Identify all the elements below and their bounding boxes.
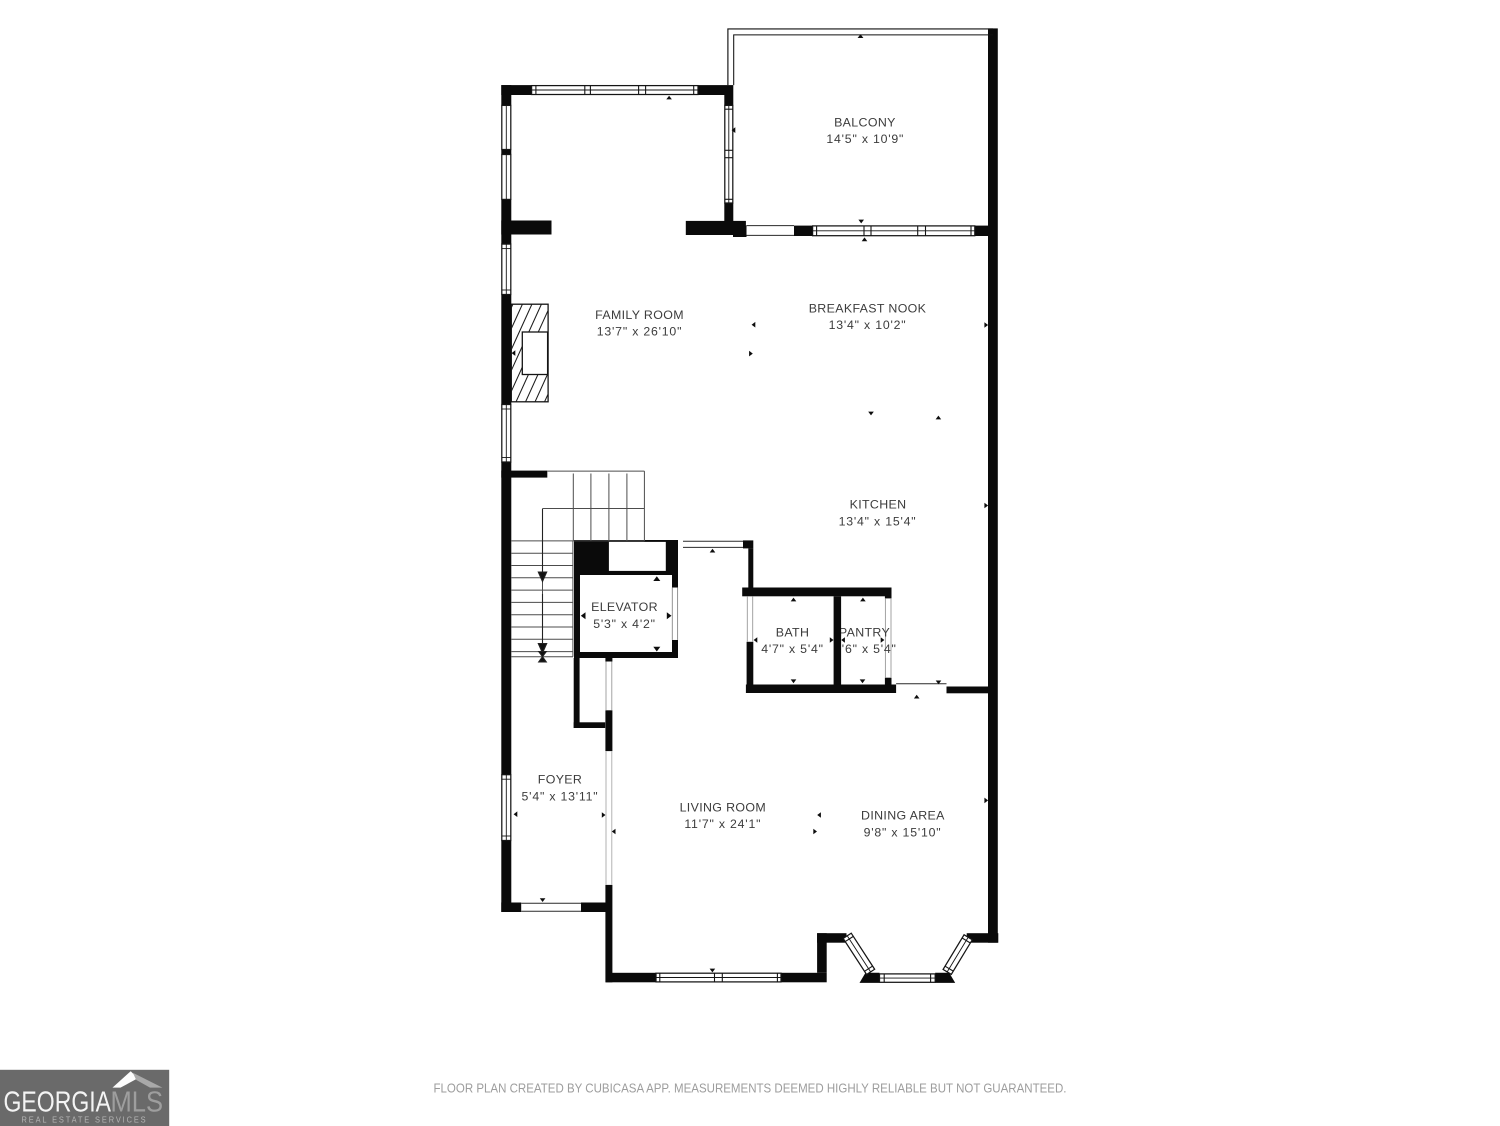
svg-text:MLS: MLS bbox=[111, 1087, 164, 1119]
svg-text:14'5" x 10'9": 14'5" x 10'9" bbox=[826, 132, 904, 146]
svg-text:DINING AREA: DINING AREA bbox=[861, 809, 945, 823]
svg-text:BATH: BATH bbox=[776, 625, 810, 639]
svg-text:FOYER: FOYER bbox=[538, 773, 582, 787]
svg-text:PANTRY: PANTRY bbox=[839, 625, 890, 639]
svg-text:FLOOR PLAN CREATED BY CUBICASA: FLOOR PLAN CREATED BY CUBICASA APP. MEAS… bbox=[434, 1082, 1067, 1096]
svg-text:5'4" x 13'11": 5'4" x 13'11" bbox=[522, 789, 599, 803]
svg-text:BALCONY: BALCONY bbox=[834, 115, 896, 129]
svg-text:'6" x 5'4": '6" x 5'4" bbox=[842, 642, 897, 656]
svg-text:5'3" x 4'2": 5'3" x 4'2" bbox=[593, 617, 656, 631]
svg-text:GEORGIA: GEORGIA bbox=[4, 1087, 112, 1119]
svg-text:BREAKFAST NOOK: BREAKFAST NOOK bbox=[809, 301, 927, 315]
svg-text:13'7" x 26'10": 13'7" x 26'10" bbox=[597, 325, 682, 339]
svg-text:KITCHEN: KITCHEN bbox=[850, 498, 907, 512]
svg-text:4'7" x 5'4": 4'7" x 5'4" bbox=[761, 642, 824, 656]
svg-text:LIVING ROOM: LIVING ROOM bbox=[680, 801, 766, 815]
svg-text:13'4" x 10'2": 13'4" x 10'2" bbox=[829, 318, 907, 332]
svg-text:REAL ESTATE SERVICES: REAL ESTATE SERVICES bbox=[22, 1116, 148, 1125]
svg-text:9'8" x 15'10": 9'8" x 15'10" bbox=[864, 826, 942, 840]
svg-text:FAMILY ROOM: FAMILY ROOM bbox=[595, 308, 684, 322]
svg-text:13'4" x 15'4": 13'4" x 15'4" bbox=[839, 515, 917, 529]
svg-text:ELEVATOR: ELEVATOR bbox=[591, 600, 658, 614]
svg-text:11'7" x 24'1": 11'7" x 24'1" bbox=[684, 817, 761, 831]
